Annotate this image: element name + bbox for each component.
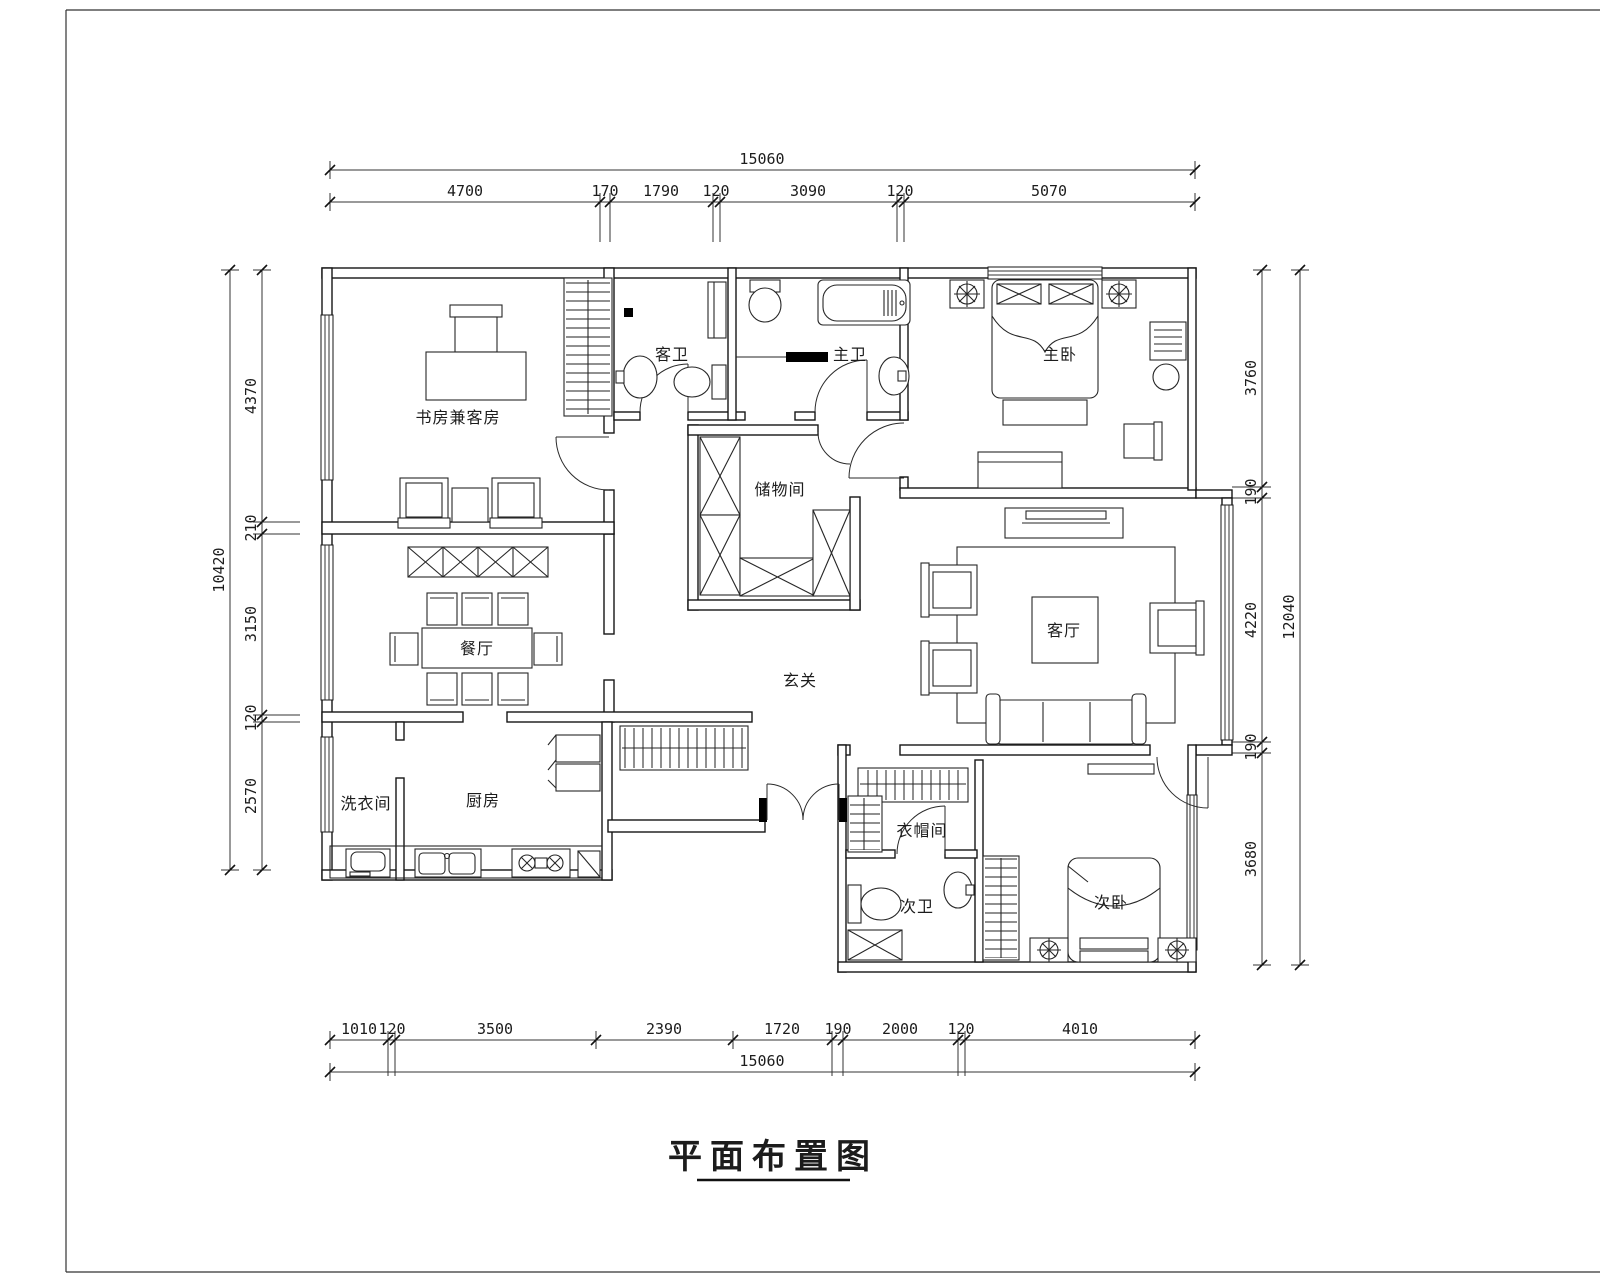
floor-plan-sheet: 15060 4700 170 1790 120 3090 120 5070 10… [0, 0, 1600, 1280]
dim-right-0: 3760 [1242, 360, 1260, 396]
bed-bench-icon [1003, 400, 1087, 425]
dim-right-4: 3680 [1242, 841, 1260, 877]
dim-right-2: 4220 [1242, 602, 1260, 638]
dim-left-total: 10420 [210, 547, 228, 592]
bathtub-icon [818, 280, 910, 325]
drawing-title-block: 平面布置图 [668, 1137, 878, 1180]
master-bedroom-furniture [950, 280, 1186, 488]
wall-stub-master-bath [786, 352, 828, 362]
mirror-cabinet-icon [708, 282, 726, 338]
entry-door-post-left [759, 798, 767, 822]
chair-icon [1124, 422, 1162, 460]
room-label-master-bath: 主卫 [833, 345, 867, 364]
washing-machine-icon [346, 849, 390, 877]
second-bath-fixtures [848, 872, 974, 960]
dimension-left: 10420 4370 210 3150 120 2570 [210, 265, 300, 875]
dim-right-1: 190 [1242, 478, 1260, 505]
dresser-icon [978, 452, 1062, 488]
window-study [321, 315, 333, 480]
room-label-guest-bath: 客卫 [655, 345, 689, 364]
dim-top-1: 170 [591, 182, 618, 200]
room-label-living: 客厅 [1047, 621, 1081, 640]
balcony-door [1157, 757, 1208, 808]
sideboard-icon [408, 547, 548, 577]
dim-left-3: 120 [242, 704, 260, 731]
stove-icon [512, 849, 570, 877]
dimension-bottom: 1010 120 3500 2390 1720 190 2000 120 401… [325, 1020, 1200, 1081]
room-label-laundry: 洗衣间 [340, 794, 391, 813]
window-laundry [321, 737, 333, 832]
dining-furniture [390, 547, 562, 705]
window-dining [321, 545, 333, 700]
desk-chair-icon [450, 305, 502, 317]
sheet-frame [66, 10, 1600, 1272]
kitchen-laundry-furniture [330, 726, 748, 878]
second-bedroom-furniture [983, 764, 1196, 962]
room-label-second-bath: 次卫 [900, 897, 934, 916]
desk-icon [426, 352, 526, 400]
room-label-study: 书房兼客房 [415, 408, 500, 427]
toilet-icon [674, 365, 726, 399]
dim-bottom-5: 190 [824, 1020, 851, 1038]
dim-top-2: 1790 [643, 182, 679, 200]
dim-left-2: 3150 [242, 606, 260, 642]
armchair-icon [921, 563, 977, 617]
sink-icon [623, 356, 657, 398]
shelf-icon [813, 510, 850, 596]
master-bath-fixtures [749, 280, 910, 395]
armchair-icon [1150, 601, 1204, 655]
dim-top-4: 3090 [790, 182, 826, 200]
dim-top-6: 5070 [1031, 182, 1067, 200]
shower-tray-icon [848, 930, 902, 960]
shelf-icon [700, 515, 740, 595]
storage-door [818, 432, 850, 464]
entry-door-post-right [839, 798, 847, 822]
dim-right-total: 12040 [1280, 594, 1298, 639]
cabinet-icon [578, 851, 600, 877]
wardrobe-icon [564, 278, 612, 416]
study-door [556, 437, 609, 490]
dim-right-3: 190 [1242, 733, 1260, 760]
dim-bottom-1: 120 [378, 1020, 405, 1038]
dim-bottom-0: 1010 [341, 1020, 377, 1038]
window-second-bedroom [1187, 795, 1197, 950]
dim-top-3: 120 [702, 182, 729, 200]
storage-shelves [700, 437, 850, 596]
shelf-icon [1088, 764, 1154, 774]
toilet-icon [749, 280, 781, 322]
room-label-dining: 餐厅 [460, 639, 494, 658]
kitchen-sink-icon [415, 849, 481, 877]
room-label-master-bedroom: 主卧 [1043, 345, 1077, 364]
room-label-storage: 储物间 [754, 480, 805, 499]
dim-bottom-8: 4010 [1062, 1020, 1098, 1038]
study-furniture [398, 278, 612, 528]
room-label-cloakroom: 衣帽间 [896, 821, 947, 840]
dim-left-0: 4370 [242, 378, 260, 414]
tv-cabinet-icon [1005, 508, 1123, 538]
armchair-icon [921, 641, 977, 695]
sofa-icon [986, 694, 1146, 744]
wardrobe-icon [983, 856, 1019, 960]
coat-closet-icon [620, 726, 748, 770]
dim-left-4: 2570 [242, 778, 260, 814]
dim-left-1: 210 [242, 514, 260, 541]
stool-icon [1153, 364, 1179, 390]
floor-plan-drawing: 15060 4700 170 1790 120 3090 120 5070 10… [0, 0, 1600, 1280]
room-label-second-bedroom: 次卧 [1094, 893, 1128, 912]
dim-bottom-2: 3500 [477, 1020, 513, 1038]
toilet-icon [848, 885, 901, 923]
window-living-bay [1221, 505, 1233, 740]
fridge-icon [548, 735, 600, 791]
shelf-icon [700, 437, 740, 515]
dim-bottom-6: 2000 [882, 1020, 918, 1038]
double-bed-icon [992, 280, 1098, 398]
guest-bath-fixtures [616, 282, 726, 399]
window-master-bedroom [988, 267, 1102, 279]
drawing-title: 平面布置图 [668, 1137, 878, 1177]
room-label-foyer: 玄关 [783, 671, 817, 690]
dim-top-0: 4700 [447, 182, 483, 200]
master-bath-door [815, 360, 867, 412]
dim-top-5: 120 [886, 182, 913, 200]
entry-double-door [767, 784, 839, 820]
dimension-right: 3760 190 4220 190 3680 12040 [1232, 265, 1309, 970]
dim-bottom-4: 1720 [764, 1020, 800, 1038]
master-bedroom-door [849, 423, 904, 478]
dim-bottom-7: 120 [947, 1020, 974, 1038]
room-label-kitchen: 厨房 [466, 791, 500, 810]
dim-bottom-3: 2390 [646, 1020, 682, 1038]
dim-top-total: 15060 [739, 150, 784, 168]
dim-bottom-total: 15060 [739, 1052, 784, 1070]
shelf-icon [740, 558, 815, 596]
hanger-rack-icon [848, 796, 882, 852]
dimension-top: 15060 4700 170 1790 120 3090 120 5070 [325, 150, 1200, 242]
side-table-icon [452, 488, 488, 522]
radiator-icon [1150, 322, 1186, 360]
